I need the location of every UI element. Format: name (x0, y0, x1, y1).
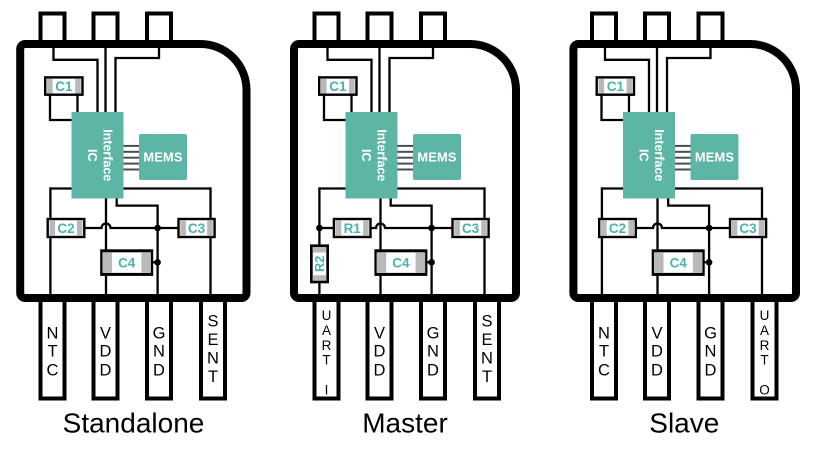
svg-text:R1: R1 (344, 221, 362, 236)
svg-text:S: S (481, 313, 492, 331)
svg-text:V: V (374, 324, 385, 342)
svg-text:N: N (705, 343, 717, 361)
svg-text:A: A (760, 323, 769, 338)
svg-text:IC: IC (637, 149, 651, 162)
svg-text:N: N (153, 343, 165, 361)
svg-text:Interface: Interface (101, 129, 115, 181)
svg-text:T: T (599, 343, 609, 361)
svg-text:N: N (207, 350, 219, 368)
svg-text:MEMS: MEMS (143, 149, 182, 164)
svg-text:U: U (322, 308, 332, 323)
svg-text:Standalone: Standalone (63, 408, 205, 439)
svg-text:MEMS: MEMS (417, 149, 456, 164)
svg-text:E: E (481, 331, 492, 349)
svg-text:V: V (100, 324, 111, 342)
svg-text:C4: C4 (118, 255, 136, 270)
svg-text:Interface: Interface (652, 129, 666, 181)
svg-text:C: C (598, 362, 610, 380)
svg-text:D: D (705, 362, 717, 380)
svg-text:C1: C1 (55, 79, 73, 94)
svg-text:R2: R2 (312, 256, 327, 272)
svg-text:E: E (207, 331, 218, 349)
svg-text:Interface: Interface (375, 129, 389, 181)
svg-text:C4: C4 (392, 255, 410, 270)
svg-text:D: D (651, 362, 663, 380)
svg-text:C3: C3 (739, 221, 757, 236)
svg-text:A: A (322, 323, 331, 338)
svg-text:G: G (153, 324, 166, 342)
svg-text:G: G (704, 324, 717, 342)
svg-text:I: I (325, 382, 329, 397)
svg-text:MEMS: MEMS (695, 149, 734, 164)
svg-text:C1: C1 (329, 79, 347, 94)
svg-text:C1: C1 (607, 79, 625, 94)
svg-text:IC: IC (359, 149, 373, 162)
svg-text:T: T (322, 353, 330, 368)
svg-text:R: R (760, 338, 770, 353)
svg-text:N: N (47, 324, 59, 342)
svg-text:G: G (427, 324, 440, 342)
svg-text:N: N (598, 324, 610, 342)
svg-text:T: T (760, 353, 768, 368)
svg-text:D: D (153, 362, 165, 380)
svg-text:IC: IC (85, 149, 99, 162)
svg-text:C2: C2 (609, 221, 626, 236)
svg-text:T: T (208, 368, 218, 386)
svg-text:T: T (47, 343, 57, 361)
svg-text:Master: Master (362, 408, 448, 439)
svg-text:O: O (759, 382, 770, 397)
svg-text:C3: C3 (188, 221, 206, 236)
svg-text:D: D (100, 362, 112, 380)
svg-text:R: R (322, 338, 332, 353)
svg-text:D: D (651, 343, 663, 361)
svg-text:C4: C4 (670, 255, 688, 270)
svg-text:U: U (760, 308, 770, 323)
svg-text:T: T (482, 368, 492, 386)
svg-text:D: D (427, 362, 439, 380)
svg-text:N: N (481, 350, 493, 368)
svg-text:D: D (100, 343, 112, 361)
svg-text:V: V (651, 324, 662, 342)
svg-text:S: S (207, 313, 218, 331)
svg-text:D: D (374, 343, 386, 361)
svg-text:Slave: Slave (649, 408, 719, 439)
svg-text:N: N (427, 343, 439, 361)
svg-text:C2: C2 (57, 221, 74, 236)
svg-text:C: C (47, 362, 59, 380)
svg-text:C3: C3 (462, 221, 480, 236)
svg-text:D: D (374, 362, 386, 380)
